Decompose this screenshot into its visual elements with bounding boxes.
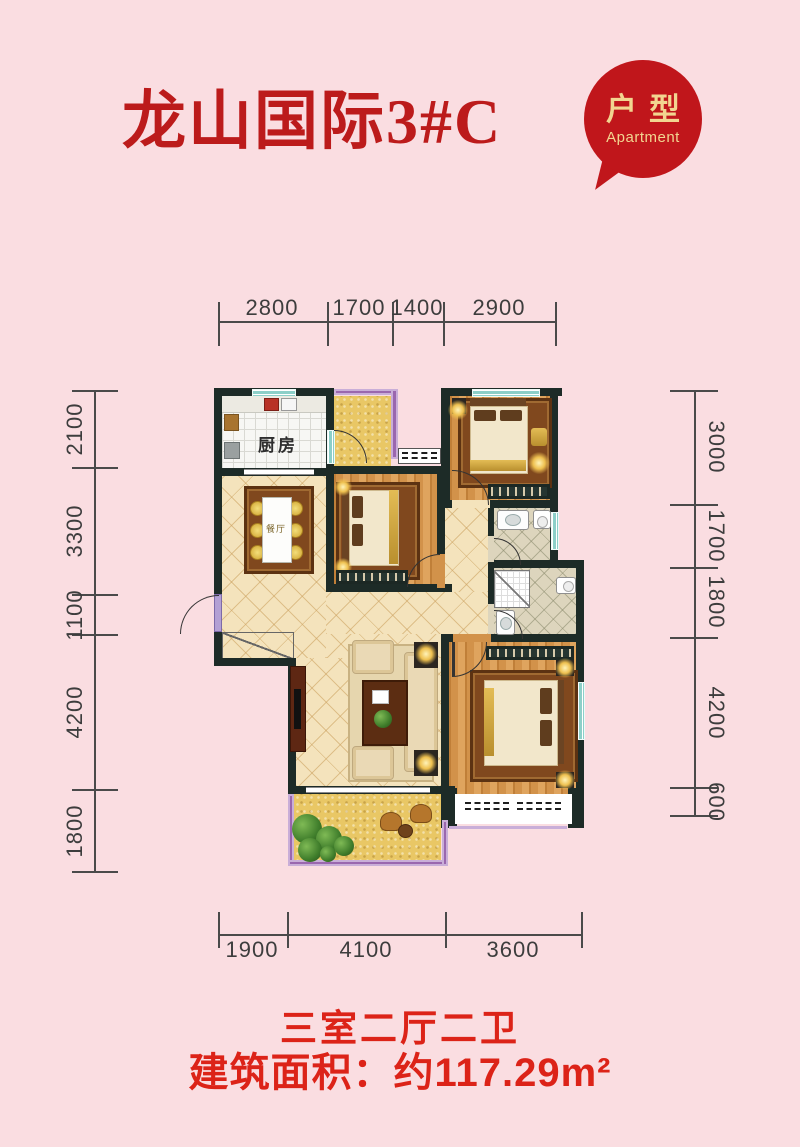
- wall: [326, 466, 450, 474]
- wall: [214, 658, 296, 666]
- tv-icon: [294, 689, 301, 729]
- dimension-label: 1800: [62, 799, 88, 863]
- pillow: [352, 524, 363, 546]
- pillow: [540, 688, 552, 714]
- bed-throw: [389, 490, 398, 564]
- wardrobe: [488, 484, 550, 499]
- dimension-tick: [72, 789, 118, 791]
- door-leaf: [452, 642, 455, 676]
- bed-throw: [470, 460, 526, 471]
- toilet-bowl: [537, 516, 548, 528]
- dimension-label: 1400: [382, 295, 452, 321]
- bay-window-railing: [449, 826, 567, 829]
- dimension-tick: [445, 912, 447, 948]
- balcony-sliding-door: [306, 787, 430, 793]
- bed-headboard: [342, 490, 349, 564]
- pillow: [540, 720, 552, 746]
- sink-icon: [497, 510, 529, 530]
- sink-basin: [505, 514, 521, 526]
- shower-icon: [494, 570, 530, 608]
- dimension-line: [94, 390, 96, 873]
- wall: [441, 634, 449, 794]
- dimension-label: 1700: [703, 504, 729, 568]
- sink-icon: [224, 414, 239, 431]
- toilet-bowl: [563, 581, 574, 592]
- lamp-icon: [555, 770, 575, 790]
- bay-window: [455, 794, 572, 824]
- apartment-badge: 户型 Apartment: [584, 60, 702, 178]
- dimension-line: [694, 390, 696, 817]
- plant-icon: [298, 838, 322, 862]
- appliance-icon: [224, 442, 240, 459]
- balcony-chair: [410, 804, 432, 823]
- book-icon: [372, 690, 389, 704]
- hatch-icon: [517, 808, 561, 810]
- tv-cabinet: [290, 666, 306, 752]
- plant-icon: [334, 836, 354, 856]
- dimension-line: [218, 934, 582, 936]
- dimension-label: 600: [703, 770, 729, 834]
- pillow: [474, 410, 496, 421]
- lamp-icon: [448, 400, 468, 420]
- page: 龙山国际3#C 户型 Apartment: [0, 0, 800, 1147]
- dimension-label: 4200: [703, 681, 729, 745]
- dimension-label: 4200: [62, 680, 88, 744]
- dimension-label: 1900: [217, 937, 287, 963]
- kitchen-label: 厨房: [258, 431, 298, 456]
- dimension-label: 4100: [331, 937, 401, 963]
- door-swing-icon: [180, 595, 219, 634]
- ac-platform: [398, 448, 441, 464]
- kitchen-sliding-door: [244, 469, 314, 475]
- pillow: [500, 410, 522, 421]
- wardrobe: [336, 570, 408, 584]
- dimension-label: 1800: [703, 570, 729, 634]
- dimension-label: 3000: [703, 415, 729, 479]
- coffee-table: [362, 680, 408, 746]
- bed-headboard: [470, 398, 526, 406]
- dimension-label: 2800: [237, 295, 307, 321]
- dimension-tick: [72, 467, 118, 469]
- bed-throw: [484, 688, 494, 756]
- range-hood-icon: [281, 398, 297, 411]
- hatch-icon: [402, 452, 437, 454]
- dimension-label: 3600: [478, 937, 548, 963]
- hatch-icon: [517, 802, 561, 804]
- dimension-label: 3300: [62, 499, 88, 563]
- lamp-icon: [334, 478, 352, 496]
- dimension-label: 2900: [464, 295, 534, 321]
- armchair: [352, 746, 394, 780]
- badge-label-en: Apartment: [584, 129, 702, 146]
- entry-foyer-mark: [222, 632, 294, 660]
- lamp-icon: [415, 643, 437, 665]
- dimension-tick: [670, 390, 718, 392]
- dimension-label: 1100: [62, 583, 88, 647]
- page-title: 龙山国际3#C: [122, 70, 502, 162]
- plant-icon: [320, 846, 336, 862]
- window: [551, 512, 559, 550]
- flower-icon: [374, 710, 392, 728]
- railing: [391, 389, 398, 459]
- lamp-icon: [528, 452, 550, 474]
- dimension-tick: [72, 390, 118, 392]
- lamp-icon: [555, 658, 575, 678]
- door-opening: [453, 634, 491, 642]
- dimension-label: 2100: [62, 397, 88, 461]
- toilet-icon: [556, 577, 576, 594]
- dimension-tick: [581, 912, 583, 948]
- bedroom-chair: [531, 428, 547, 446]
- hatch-icon: [402, 457, 437, 459]
- dining-label: 餐厅: [266, 522, 286, 535]
- dimension-tick: [287, 912, 289, 948]
- toilet-icon: [533, 510, 551, 529]
- area-summary: 建筑面积：约117.29m²: [0, 1040, 800, 1098]
- railing: [334, 389, 398, 395]
- hatch-icon: [465, 808, 509, 810]
- window: [577, 682, 585, 740]
- pillow: [352, 496, 363, 518]
- hall-floor: [326, 592, 488, 634]
- shower-diagonal: [495, 571, 529, 607]
- corridor-floor: [445, 508, 488, 592]
- dimension-tick: [555, 302, 557, 346]
- badge-label-cn: 户型: [584, 84, 702, 129]
- wall: [326, 466, 334, 592]
- lamp-icon: [415, 752, 437, 774]
- dimension-tick: [218, 302, 220, 346]
- stove-icon: [264, 398, 279, 411]
- dimension-tick: [72, 871, 118, 873]
- hatch-icon: [465, 802, 509, 804]
- railing: [442, 820, 448, 866]
- dimension-tick: [670, 637, 718, 639]
- dimension-line: [218, 321, 555, 323]
- window: [472, 389, 540, 397]
- armchair: [352, 640, 394, 674]
- balcony-table: [398, 824, 413, 838]
